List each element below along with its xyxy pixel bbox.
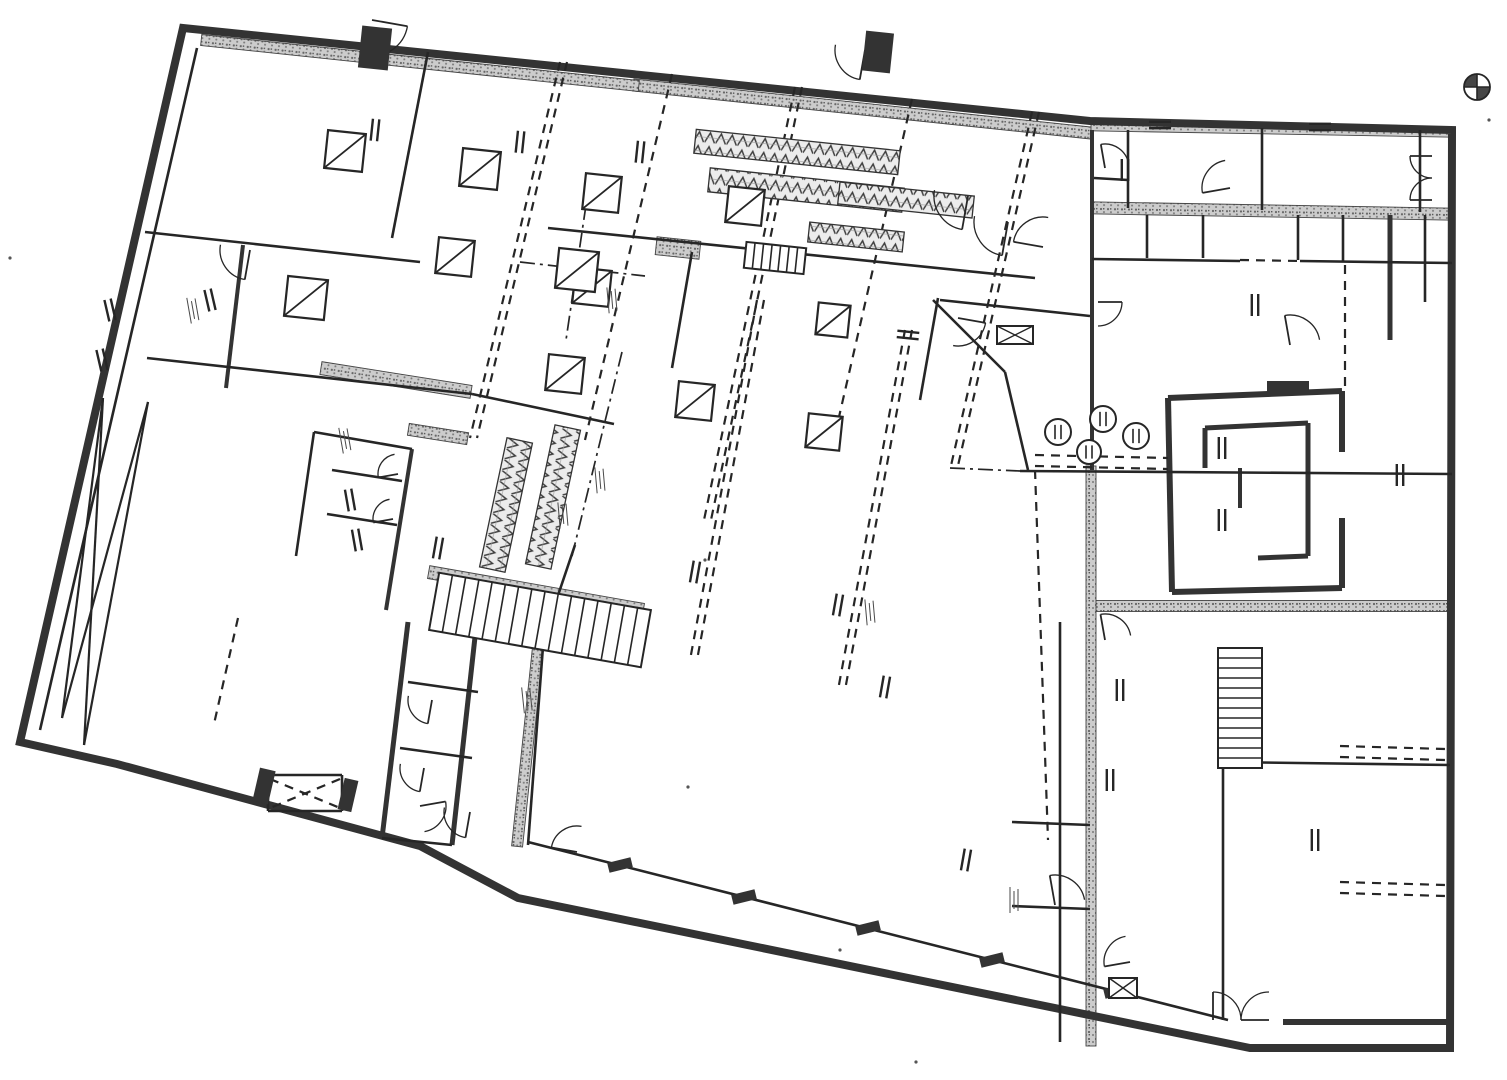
dashed-line [1035, 466, 1168, 469]
wall-pier-rect [358, 26, 392, 71]
window-mark [104, 299, 115, 322]
partition-wall [920, 298, 938, 400]
door-leaf [1101, 144, 1105, 168]
door-leaf [958, 318, 986, 323]
ramp-hatch-rect [480, 438, 533, 573]
layer-heavy-walls [226, 130, 1450, 1022]
ramp-hatch-rect [808, 222, 905, 252]
hatched-wall-band-rect [1091, 601, 1453, 612]
door-swing [835, 45, 865, 80]
column-square [675, 381, 715, 421]
door-swing [1101, 144, 1129, 168]
door-arc [1101, 144, 1129, 164]
heavy-wall [386, 449, 412, 610]
window-mark-line [516, 131, 518, 153]
wall-pier [252, 768, 275, 805]
wall-pier-rect [862, 31, 894, 74]
illegible-annotation-stroke [566, 504, 568, 526]
window-mark [636, 141, 645, 164]
scan-speckle [703, 558, 706, 561]
layer-window-marks [96, 119, 1403, 872]
door-swing [1013, 217, 1048, 247]
illegible-annotation-stroke [187, 298, 192, 324]
door-swing [974, 216, 1008, 255]
hatched-wall-band [512, 619, 547, 847]
door-swing [373, 499, 393, 522]
column-square [545, 354, 585, 394]
illegible-annotation-stroke [191, 301, 194, 319]
window-mark-line [104, 300, 109, 321]
scan-speckle [914, 1060, 917, 1063]
partition-wall [1092, 259, 1240, 261]
column-square [815, 302, 850, 337]
window-mark-line [967, 850, 971, 872]
heavy-wall [1205, 423, 1308, 428]
staircase [1218, 648, 1262, 768]
scan-speckle [8, 256, 11, 259]
partition-wall [1005, 372, 1028, 470]
hatched-wall-band-rect [201, 35, 640, 92]
dashed-line [838, 330, 905, 690]
column-round [1077, 440, 1101, 464]
window-mark-line [897, 331, 919, 333]
illegible-annotation-stroke [339, 428, 344, 454]
door-leaf [245, 250, 250, 280]
heavy-wall [1172, 588, 1342, 592]
wall-pier [979, 952, 1005, 968]
north-arrow-icon [1464, 74, 1490, 100]
door-swing [220, 245, 250, 280]
hatched-wall-band [1091, 601, 1453, 612]
ramp-hatch-rect [694, 129, 900, 174]
ramp-hatch-strip [526, 425, 581, 569]
window-mark [897, 331, 920, 340]
window-mark-line [211, 289, 216, 310]
window-mark-line [96, 350, 101, 371]
door-arc [835, 45, 860, 80]
column-square [459, 148, 501, 190]
door-swing [378, 454, 398, 477]
column-square [324, 130, 366, 172]
door-arc [425, 801, 446, 831]
window-mark [345, 489, 355, 512]
illegible-annotation-stroke [522, 687, 525, 713]
door-arc [1213, 992, 1241, 1020]
door-leaf [1050, 875, 1055, 905]
door-arc [1050, 875, 1085, 900]
door-leaf [372, 20, 407, 26]
dashed-line [1340, 757, 1445, 760]
dashed-line [1340, 746, 1445, 749]
window-mark [352, 529, 362, 552]
column-square [805, 413, 842, 450]
window-mark [1397, 464, 1403, 486]
partition-wall [145, 232, 420, 262]
window-mark-line [345, 490, 349, 512]
illegible-annotation-stroke [615, 289, 617, 311]
column-round-circle [1045, 419, 1071, 445]
column-round [1123, 423, 1149, 449]
column-round-circle [1077, 440, 1101, 464]
door-leaf [1285, 315, 1290, 345]
door-arc [551, 826, 581, 847]
door-leaf [1104, 962, 1130, 967]
scanned-floor-plan-page [0, 0, 1507, 1080]
illegible-annotation-stroke [865, 599, 867, 625]
scan-speckle [838, 948, 841, 951]
door-arc [1104, 936, 1125, 966]
window-mark [1219, 509, 1225, 531]
window-mark-line [880, 676, 884, 698]
window-mark-line [636, 141, 638, 163]
partition-wall [1012, 822, 1090, 825]
wall-pier [731, 889, 757, 905]
door-swing [420, 801, 446, 831]
window-mark-line [642, 141, 644, 163]
cross-brace-line [62, 398, 103, 718]
heavy-wall [382, 622, 408, 838]
door-arc [1013, 217, 1048, 242]
north-arrow-quadrant [1477, 87, 1490, 100]
dashed-line [1340, 893, 1445, 896]
illegible-annotation-stroke [873, 601, 875, 623]
column-round-circle [1090, 406, 1116, 432]
door-swing [400, 764, 424, 792]
wall-pier-rect [252, 768, 275, 805]
ramp-hatch-strip [694, 129, 900, 174]
door-swing [1104, 936, 1130, 966]
dashed-line [690, 300, 757, 660]
dashed-line [214, 618, 238, 724]
hatched-wall-band [201, 35, 640, 92]
staircase [744, 242, 806, 274]
window-mark-line [833, 594, 837, 616]
column-square [555, 248, 599, 292]
window-mark-line [439, 538, 443, 560]
dashed-line [1240, 260, 1300, 261]
wall-pier-rect [855, 920, 881, 936]
door-swing [551, 826, 581, 852]
shaft-box [1109, 978, 1137, 998]
door-swing [1241, 992, 1269, 1020]
partition-wall [40, 48, 197, 730]
ramp-hatch-rect [526, 425, 581, 569]
window-mark-line [352, 530, 356, 552]
window-mark [690, 561, 700, 584]
illegible-annotation [595, 467, 605, 494]
scan-speckle [1487, 118, 1490, 121]
window-mark [1117, 679, 1123, 701]
hatched-wall-band-rect [1091, 202, 1453, 220]
door-leaf [428, 700, 432, 724]
heavy-wall [1168, 398, 1172, 592]
window-mark [1219, 437, 1225, 459]
partition-wall [1020, 471, 1452, 474]
partition-wall [1012, 906, 1090, 909]
axis-line [950, 468, 1020, 471]
window-mark [961, 849, 971, 872]
illegible-annotation-stroke [611, 291, 613, 309]
column-round [1090, 406, 1116, 432]
door-leaf [378, 474, 398, 477]
door-arc [378, 454, 395, 477]
column-round [1045, 419, 1071, 445]
door-arc [1285, 315, 1320, 340]
hatched-wall-band [407, 423, 468, 444]
floor-plan-drawing [0, 0, 1507, 1080]
partition-wall [392, 52, 428, 238]
door-swing [1050, 875, 1085, 905]
window-mark [1252, 294, 1258, 316]
door-swing [1098, 302, 1122, 326]
window-mark-line [377, 119, 379, 141]
window-mark [1107, 769, 1113, 791]
wall-pier-rect [1267, 381, 1309, 393]
door-arc [373, 499, 390, 522]
door-arc [400, 764, 420, 792]
north-arrow-quadrant [1464, 74, 1477, 87]
partition-wall [314, 432, 412, 449]
wall-pier [855, 920, 881, 936]
window-mark [1312, 829, 1318, 851]
illegible-annotation-stroke [195, 298, 199, 320]
illegible-annotation [1010, 887, 1018, 913]
column-square [582, 173, 622, 213]
wall-pier-rect [979, 952, 1005, 968]
partition-wall [933, 300, 1005, 372]
illegible-annotation-stroke [343, 431, 346, 449]
window-mark-line [204, 290, 209, 311]
door-swing [1202, 160, 1230, 192]
wall-pier [1267, 381, 1309, 393]
door-leaf [420, 801, 446, 806]
window-mark-line [839, 595, 843, 617]
window-mark-line [961, 849, 965, 871]
illegible-annotation-stroke [869, 603, 871, 621]
window-mark-line [351, 489, 355, 511]
wall-pier-rect [731, 889, 757, 905]
ramp-hatch-strip [838, 182, 975, 218]
shaft-box [997, 326, 1033, 344]
door-arc [1098, 302, 1122, 326]
ramp-hatch-strip [808, 222, 905, 252]
dashed-line [957, 112, 1039, 470]
hatched-wall-band-rect [1086, 466, 1096, 1046]
dashed-line [950, 112, 1032, 470]
illegible-annotation [865, 599, 875, 626]
wall-pier [862, 31, 894, 74]
illegible-annotation [187, 297, 199, 324]
illegible-annotation-stroke [599, 471, 601, 489]
window-mark-line [897, 337, 919, 339]
window-mark-line [371, 119, 373, 141]
door-arc [1241, 992, 1269, 1020]
partition-wall [672, 252, 692, 368]
door-swing [1285, 315, 1320, 345]
window-mark [1122, 159, 1128, 181]
door-arc [1202, 160, 1225, 192]
scan-speckle [686, 785, 689, 788]
partition-wall [1300, 261, 1452, 263]
door-leaf [465, 812, 470, 838]
partition-wall [940, 300, 1090, 316]
illegible-annotation [339, 427, 351, 454]
window-mark-line [696, 562, 700, 584]
column-square [284, 276, 328, 320]
door-arc [1100, 614, 1130, 635]
door-leaf [420, 768, 424, 792]
heavy-wall [452, 628, 476, 845]
hatched-wall-band [1091, 202, 1453, 220]
window-mark [516, 131, 525, 154]
window-mark [433, 537, 443, 560]
dashed-line [845, 330, 912, 690]
heavy-wall [1168, 391, 1342, 398]
hatched-wall-band [1086, 466, 1096, 1046]
partition-wall [147, 358, 472, 394]
door-leaf [1202, 188, 1230, 193]
door-leaf [1013, 242, 1043, 247]
window-mark [833, 594, 843, 617]
window-mark [880, 676, 890, 699]
illegible-annotation-stroke [603, 469, 605, 491]
column-square [435, 237, 475, 277]
window-mark-line [522, 131, 524, 153]
wall-pier [607, 857, 633, 873]
hatched-wall-band-rect [407, 423, 468, 444]
dashed-line [697, 300, 764, 660]
dashed-line [1035, 470, 1048, 840]
window-mark-line [433, 537, 437, 559]
ramp-hatch-strip [480, 438, 533, 573]
hatched-wall-band-rect [512, 619, 547, 847]
door-swing [1100, 614, 1130, 640]
window-mark-line [690, 561, 694, 583]
column-round-circle [1123, 423, 1149, 449]
wall-pier [358, 26, 392, 71]
heavy-wall [1258, 556, 1308, 558]
illegible-annotation-stroke [595, 467, 597, 493]
window-mark [371, 119, 380, 142]
partition-wall [296, 432, 314, 556]
layer-wall-piers [252, 26, 1309, 999]
dashed-line [1340, 882, 1445, 885]
door-arc [974, 216, 1002, 255]
wall-pier-rect [607, 857, 633, 873]
door-arc [408, 696, 428, 724]
ramp-hatch-rect [838, 182, 975, 218]
column-square [725, 186, 765, 226]
door-swing [408, 696, 432, 724]
window-mark-line [886, 677, 890, 699]
door-swing [1213, 992, 1241, 1020]
window-mark [204, 289, 215, 312]
door-leaf [1100, 614, 1105, 640]
window-mark-line [358, 529, 362, 551]
